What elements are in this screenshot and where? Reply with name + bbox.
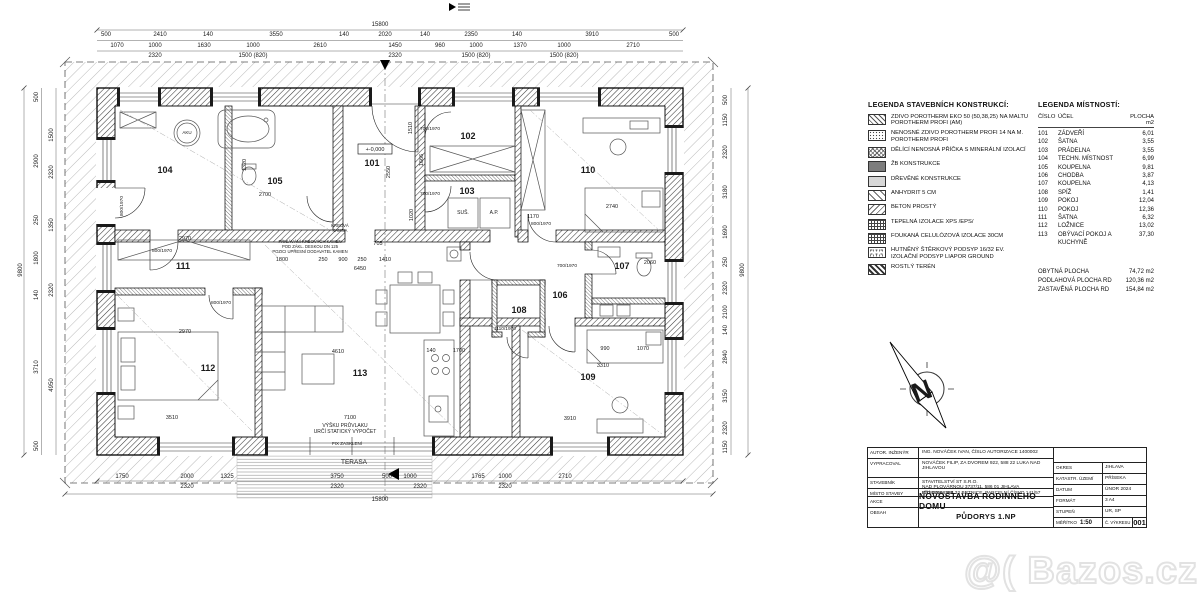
hatch-swatch <box>868 130 886 141</box>
plan-label: 3550 <box>269 32 283 38</box>
plan-label: 800/1970 <box>211 300 231 306</box>
plan-label: 2320 <box>723 145 729 159</box>
plan-label: 500 <box>101 32 112 38</box>
title-block-empty-cell <box>1054 448 1146 463</box>
room-number: 105 <box>1038 164 1058 172</box>
col-ucel: ÚČEL <box>1058 114 1128 126</box>
plan-label: 1320 <box>242 159 248 171</box>
plan-label: 101 <box>364 158 379 168</box>
plan-label: 1350 <box>49 218 55 232</box>
legend-construction-item: DŘEVĚNÉ KONSTRUKCE <box>868 176 1030 187</box>
plan-label: 105 <box>267 176 282 186</box>
area-totals: OBYTNÁ PLOCHA 74,72 m2 PODLAHOVÁ PLOCHA … <box>1038 268 1154 295</box>
room-name: PRÁDELNA <box>1058 147 1128 155</box>
plan-label: 2970 <box>179 329 191 335</box>
legend-construction-item: DĚLÍCÍ NENOSNÁ PŘÍČKA S MINERÁLNÍ IZOLAC… <box>868 147 1030 158</box>
plan-label: 500 <box>34 440 40 451</box>
plan-label: 1150 <box>723 113 729 127</box>
room-name: KOUPELNA <box>1058 180 1128 188</box>
plan-label: 4950 <box>49 378 55 392</box>
plan-label: 1500 (820) <box>238 53 267 59</box>
room-name: ŠATNA <box>1058 138 1128 146</box>
hatch-swatch <box>868 204 886 215</box>
total-label: OBYTNÁ PLOCHA <box>1038 268 1129 277</box>
plan-label: 2320 <box>49 283 55 297</box>
plan-label: 800/1970 <box>119 196 125 216</box>
plan-label: 3750 <box>330 474 344 480</box>
plan-label: 2320 <box>180 484 194 490</box>
plan-label: +-0,000 <box>366 147 385 153</box>
plan-label: FIX ZASKLENÍ <box>332 440 363 446</box>
plan-label: 7100 <box>344 415 356 421</box>
floor-plan: 1580050024101403550140202014023501403910… <box>0 0 760 595</box>
plan-label: 2970 <box>179 236 191 242</box>
plan-label: 705 <box>373 241 382 247</box>
plan-label: 1070 <box>110 43 124 49</box>
plan-label: 1000 <box>403 474 417 480</box>
total-value: 74,72 m2 <box>1129 268 1154 277</box>
plan-label: 3710 <box>34 360 40 374</box>
info-label: OKRES <box>1054 463 1103 473</box>
plan-label: 700/1970 <box>420 191 440 197</box>
legend-construction-item: ŽB KONSTRUKCE <box>868 161 1030 172</box>
plan-label: 2350 <box>464 32 478 38</box>
project-title: NOVOSTAVBA RODINNÉHO DOMU <box>919 497 1053 507</box>
legend-construction-label: HUTNĚNÝ ŠTĚRKOVÝ PODSYP 16/32 EV. IZOLAČ… <box>891 247 1030 260</box>
plan-label: 108 <box>511 305 526 315</box>
plan-label: 1020 <box>409 209 415 221</box>
room-number: 112 <box>1038 222 1058 230</box>
room-number: 103 <box>1038 147 1058 155</box>
plan-label: 1800 <box>34 251 40 265</box>
plan-label: 2060 <box>644 260 656 266</box>
plan-label: 1630 <box>197 43 211 49</box>
room-area: 1,41 <box>1128 189 1154 197</box>
plan-label: 112 <box>201 363 216 373</box>
plan-label: URČÍ STATICKÝ VÝPOČET <box>314 428 377 435</box>
plan-label: 15800 <box>372 497 389 503</box>
title-block-row-label: VYPRACOVAL <box>868 459 919 477</box>
room-area: 13,02 <box>1128 222 1154 230</box>
room-number: 101 <box>1038 130 1058 138</box>
roof-overhang <box>60 57 718 488</box>
room-name: ŠATNA <box>1058 214 1128 222</box>
plan-label: 2710 <box>626 43 640 49</box>
legend-construction-item: HUTNĚNÝ ŠTĚRKOVÝ PODSYP 16/32 EV. IZOLAČ… <box>868 247 1030 260</box>
plan-label: 1000 <box>148 43 162 49</box>
room-name: KOUPELNA <box>1058 164 1128 172</box>
plan-label: 1410 <box>379 257 391 263</box>
plan-label: 4610 <box>332 349 344 355</box>
legend-rooms-header: ČÍSLO ÚČEL PLOCHA m2 <box>1038 114 1154 128</box>
plan-label: 990 <box>600 346 609 352</box>
room-number: 111 <box>1038 214 1058 222</box>
info-value: 3 A4 <box>1103 496 1146 506</box>
plan-label: 3510 <box>166 415 178 421</box>
hatch-swatch <box>868 147 886 158</box>
total-row: OBYTNÁ PLOCHA 74,72 m2 <box>1038 268 1154 277</box>
plan-label: 250 <box>34 214 40 225</box>
room-area: 12,36 <box>1128 206 1154 214</box>
title-block-row: AUTOR. INŽENÝR ING. NOVÁČEK IVAN, ČÍSLO … <box>868 448 1053 459</box>
plan-label: 2020 <box>378 32 392 38</box>
plan-label: 250 <box>723 256 729 267</box>
plan-label: 1325 <box>220 474 234 480</box>
total-row: ZASTAVĚNÁ PLOCHA RD 154,84 m2 <box>1038 286 1154 295</box>
plan-label: 1450 <box>388 43 402 49</box>
plan-label: 800/1970 <box>531 221 551 227</box>
legend-construction-item: ANHYDRIT 5 cm <box>868 190 1030 201</box>
legend-construction-label: BETON PROSTÝ <box>891 204 936 210</box>
plan-label: 1000 <box>469 43 483 49</box>
legend-rooms-title: LEGENDA MÍSTNOSTÍ: <box>1038 100 1154 109</box>
room-number: 108 <box>1038 189 1058 197</box>
total-label: ZASTAVĚNÁ PLOCHA RD <box>1038 286 1126 295</box>
col-cislo: ČÍSLO <box>1038 114 1058 126</box>
total-label: PODLAHOVÁ PLOCHA RD <box>1038 277 1126 286</box>
info-row: DATUM ÚNOR 2024 <box>1054 485 1146 496</box>
legend-constructions-list: ZDIVO POROTHERM EKO 50 (50,38,25) NA MAL… <box>868 114 1030 275</box>
furniture <box>118 110 663 436</box>
plan-label: 3910 <box>564 416 576 422</box>
info-row: STUPEŇ UR, SP <box>1054 507 1146 518</box>
room-row: 105 KOUPELNA 9,81 <box>1038 164 1154 172</box>
akce-row: AKCE NOVOSTAVBA RODINNÉHO DOMU <box>868 497 1053 508</box>
room-row: 101 ZÁDVEŘÍ 6,01 <box>1038 130 1154 138</box>
plan-label: A.P. <box>490 210 499 216</box>
hatch-swatch <box>868 161 886 172</box>
plan-label: 109 <box>580 372 595 382</box>
room-area: 6,01 <box>1128 130 1154 138</box>
plan-label: 250 <box>318 257 327 263</box>
page: 1580050024101403550140202014023501403910… <box>0 0 1200 595</box>
plan-label: 104 <box>157 165 172 175</box>
room-area: 12,04 <box>1128 197 1154 205</box>
room-name: LOŽNICE <box>1058 222 1128 230</box>
legend-construction-item: BETON PROSTÝ <box>868 204 1030 215</box>
plan-label: 2320 <box>413 484 427 490</box>
legend-construction-item: FOUKANÁ CELULÓZOVÁ IZOLACE 30cm <box>868 233 1030 244</box>
plan-label: 500 <box>382 474 393 480</box>
room-row: 104 TECHN. MÍSTNOST 6,99 <box>1038 155 1154 163</box>
plan-label: 2610 <box>313 43 327 49</box>
plan-label: AKU <box>182 130 191 135</box>
info-label: KATASTR. ÚZEMÍ <box>1054 474 1103 484</box>
plan-label: 2710 <box>558 474 572 480</box>
plan-label: 2320 <box>330 484 344 490</box>
plan-label: 140 <box>426 348 435 354</box>
legend-rooms-list: 101 ZÁDVEŘÍ 6,01 102 ŠATNA 3,55 103 PRÁD… <box>1038 130 1154 248</box>
plan-label: 1500 (820) <box>549 53 578 59</box>
plan-label: 2900 <box>34 154 40 168</box>
room-name: CHODBA <box>1058 172 1128 180</box>
plan-label: 140 <box>723 324 729 335</box>
hatch-swatch <box>868 114 886 125</box>
title-block-row-label: MÍSTO STAVBY <box>868 489 919 496</box>
plan-label: 1690 <box>723 225 729 239</box>
plan-label: 113 <box>353 368 368 378</box>
info-value: JIHLAVA <box>1103 463 1146 473</box>
plan-label: 15800 <box>372 22 389 28</box>
plan-label: 2700 <box>259 192 271 198</box>
plan-label: 1700 <box>453 348 465 354</box>
plan-label: 140 <box>339 32 350 38</box>
room-number: 106 <box>1038 172 1058 180</box>
room-area: 3,55 <box>1128 138 1154 146</box>
legend-construction-label: DĚLÍCÍ NENOSNÁ PŘÍČKA S MINERÁLNÍ IZOLAC… <box>891 147 1026 153</box>
room-number: 113 <box>1038 231 1058 248</box>
legend-construction-label: ANHYDRIT 5 cm <box>891 190 936 196</box>
info-label: DATUM <box>1054 485 1103 495</box>
plan-label: 1765 <box>471 474 485 480</box>
legend-rooms: LEGENDA MÍSTNOSTÍ: ČÍSLO ÚČEL PLOCHA m2 … <box>1038 100 1154 295</box>
akce-label: AKCE <box>868 497 919 507</box>
info-row: KATASTR. ÚZEMÍ PŘÍSEKA <box>1054 474 1146 485</box>
room-name: OBÝVACÍ POKOJ A KUCHYNĚ <box>1058 231 1128 248</box>
room-diagonals <box>118 110 662 434</box>
plan-label: 107 <box>614 261 629 271</box>
interior-walls <box>115 106 665 437</box>
room-name: SPÍŽ <box>1058 189 1128 197</box>
plan-label: 3910 <box>585 32 599 38</box>
plan-label: POZICI UPŘESNÍ DODAVATEL KAMEN <box>272 249 347 254</box>
title-block-row: STAVEBNÍK STAVITELSTVÍ ST S.R.O. NAD PLO… <box>868 478 1053 489</box>
watermark-logo: @( <box>964 550 1016 592</box>
info-value: UR, SP <box>1103 507 1146 517</box>
room-area: 3,87 <box>1128 172 1154 180</box>
plan-label: 1000 <box>498 474 512 480</box>
plan-label: 1500 <box>49 128 55 142</box>
plan-label: 700/1970 <box>557 263 577 269</box>
plan-label: 2320 <box>49 165 55 179</box>
watermark: @( Bazos.cz <box>964 550 1198 593</box>
room-row: 103 PRÁDELNA 3,55 <box>1038 147 1154 155</box>
obsah-label: OBSAH <box>868 508 919 527</box>
title-block-row: VYPRACOVAL NOVÁČEK FILIP, ZA DVOREM 922,… <box>868 459 1053 478</box>
title-block-row-value: STAVITELSTVÍ ST S.R.O. NAD PLOVÁRNOU 373… <box>919 478 1053 488</box>
legend-construction-label: ROSTLÝ TERÉN <box>891 264 935 270</box>
legend-construction-label: FOUKANÁ CELULÓZOVÁ IZOLACE 30cm <box>891 233 1003 239</box>
title-block-row-value: ING. NOVÁČEK IVAN, ČÍSLO AUTORIZACE 1400… <box>919 448 1053 458</box>
room-row: 110 POKOJ 12,36 <box>1038 206 1154 214</box>
scale-label: MĚŘÍTKO <box>1056 520 1077 528</box>
plan-label: KAMNA <box>333 228 348 233</box>
plan-label: VÝŠKU PRŮVLAKU <box>322 422 368 429</box>
total-row: PODLAHOVÁ PLOCHA RD 120,36 m2 <box>1038 277 1154 286</box>
plan-label: 9800 <box>740 263 746 277</box>
room-number: 102 <box>1038 138 1058 146</box>
info-value: ÚNOR 2024 <box>1103 485 1146 495</box>
hatch-swatch <box>868 219 886 230</box>
room-row: 113 OBÝVACÍ POKOJ A KUCHYNĚ 37,30 <box>1038 231 1154 248</box>
plan-label: 140 <box>512 32 523 38</box>
info-label: FORMÁT <box>1054 496 1103 506</box>
total-value: 120,36 m2 <box>1126 277 1154 286</box>
plan-label: 500 <box>669 32 680 38</box>
room-area: 37,30 <box>1128 231 1154 248</box>
plan-label: 2320 <box>148 53 162 59</box>
legend-constructions: LEGENDA STAVEBNÍCH KONSTRUKCÍ: ZDIVO POR… <box>868 100 1030 278</box>
plan-label: 700/1970 <box>420 126 440 132</box>
plan-label: 800/1970 <box>152 248 172 254</box>
plan-label: 2840 <box>723 350 729 364</box>
hatch-swatch <box>868 233 886 244</box>
hatch-swatch <box>868 176 886 187</box>
plan-label: 1510 <box>408 122 414 134</box>
plan-label: 900 <box>338 257 347 263</box>
plan-label: 3310 <box>597 363 609 369</box>
info-row: OKRES JIHLAVA <box>1054 463 1146 474</box>
room-row: 109 POKOJ 12,04 <box>1038 197 1154 205</box>
plan-label: 960 <box>435 43 446 49</box>
plan-label: 500 <box>34 91 40 102</box>
hatch-swatch <box>868 264 886 275</box>
room-area: 6,99 <box>1128 155 1154 163</box>
plan-label: 3150 <box>723 389 729 403</box>
plan-label: 102 <box>460 131 475 141</box>
plan-label: SUŠ. <box>457 209 469 216</box>
drawing-number: 001 <box>1133 518 1146 527</box>
room-name: POKOJ <box>1058 197 1128 205</box>
drawing-title: PŮDORYS 1.NP <box>919 508 1053 527</box>
scale-cell: MĚŘÍTKO 1:50 <box>1054 518 1103 527</box>
legend-construction-label: ZDIVO POROTHERM EKO 50 (50,38,25) NA MAL… <box>891 114 1030 127</box>
room-row: 106 CHODBA 3,87 <box>1038 172 1154 180</box>
room-name: TECHN. MÍSTNOST <box>1058 155 1128 163</box>
plan-label: 2320 <box>723 421 729 435</box>
room-number: 104 <box>1038 155 1058 163</box>
col-plocha: PLOCHA m2 <box>1128 114 1154 126</box>
plan-label: 1500 (820) <box>461 53 490 59</box>
legend-construction-item: ZDIVO POROTHERM EKO 50 (50,38,25) NA MAL… <box>868 114 1030 127</box>
plan-label: 1110/1970 <box>494 326 516 332</box>
room-area: 6,32 <box>1128 214 1154 222</box>
title-block-row-label: STAVEBNÍK <box>868 478 919 488</box>
plan-label: 2320 <box>723 281 729 295</box>
plan-label: 1750 <box>115 474 129 480</box>
info-value: PŘÍSEKA <box>1103 474 1146 484</box>
legend-construction-item: TEPELNÁ IZOLACE XPS /EPS/ <box>868 219 1030 230</box>
room-row: 102 ŠATNA 3,55 <box>1038 138 1154 146</box>
plan-label: 103 <box>459 186 474 196</box>
room-number: 109 <box>1038 197 1058 205</box>
title-block-row-label: AUTOR. INŽENÝR <box>868 448 919 458</box>
obsah-row: OBSAH PŮDORYS 1.NP <box>868 508 1053 527</box>
room-area: 4,13 <box>1128 180 1154 188</box>
plan-label: 1666 <box>419 154 425 166</box>
title-block: AUTOR. INŽENÝR ING. NOVÁČEK IVAN, ČÍSLO … <box>867 447 1147 528</box>
room-area: 9,81 <box>1128 164 1154 172</box>
plan-label: 1000 <box>246 43 260 49</box>
plan-label: 250 <box>357 257 366 263</box>
room-row: 112 LOŽNICE 13,02 <box>1038 222 1154 230</box>
room-name: POKOJ <box>1058 206 1128 214</box>
legend-construction-label: NENOSNÉ ZDIVO POROTHERM PROFI 14 NA M. P… <box>891 130 1030 143</box>
legend-constructions-title: LEGENDA STAVEBNÍCH KONSTRUKCÍ: <box>868 100 1030 109</box>
plan-label: TERASA <box>341 459 368 466</box>
watermark-text: Bazos.cz <box>1027 550 1198 592</box>
title-block-row-value: NOVÁČEK FILIP, ZA DVOREM 922, 588 22 LUK… <box>919 459 1053 477</box>
plan-label: 1370 <box>513 43 527 49</box>
plan-label: 1000 <box>557 43 571 49</box>
room-area: 3,55 <box>1128 147 1154 155</box>
room-row: 108 SPÍŽ 1,41 <box>1038 189 1154 197</box>
plan-label: 6450 <box>354 266 366 272</box>
room-row: 111 ŠATNA 6,32 <box>1038 214 1154 222</box>
legend-construction-label: DŘEVĚNÉ KONSTRUKCE <box>891 176 961 182</box>
plan-label: 110 <box>581 165 596 175</box>
scale-value: 1:50 <box>1080 520 1092 528</box>
north-arrow: N <box>872 332 992 442</box>
plan-label: 2410 <box>153 32 167 38</box>
hatch-swatch <box>868 190 886 201</box>
plan-label: 1070 <box>637 346 649 352</box>
plan-label: 9800 <box>18 263 24 277</box>
plan-label: 140 <box>420 32 431 38</box>
room-number: 107 <box>1038 180 1058 188</box>
title-block-right: OKRES JIHLAVA KATASTR. ÚZEMÍ PŘÍSEKA DAT… <box>1054 448 1146 527</box>
plan-label: 106 <box>552 290 567 300</box>
info-label: STUPEŇ <box>1054 507 1103 517</box>
legend-construction-item: ROSTLÝ TERÉN <box>868 264 1030 275</box>
plan-label: 1150 <box>723 440 729 454</box>
plan-label: 2320 <box>388 53 402 59</box>
drawing-number-label: Č. VÝKRESU <box>1103 518 1133 527</box>
plan-label: 3180 <box>723 185 729 199</box>
plan-label: 2100 <box>723 305 729 319</box>
plan-label: 2320 <box>498 484 512 490</box>
scale-row: MĚŘÍTKO 1:50 Č. VÝKRESU 001 <box>1054 518 1146 527</box>
plan-label: 111 <box>176 261 190 271</box>
room-number: 110 <box>1038 206 1058 214</box>
plan-label: 1170 <box>527 214 539 220</box>
plan-label: 140 <box>34 289 40 300</box>
plan-label: 500 <box>723 94 729 105</box>
plan-label: 1800 <box>276 257 288 263</box>
hatch-swatch <box>868 247 886 258</box>
north-letter: N <box>907 374 936 409</box>
room-row: 107 KOUPELNA 4,13 <box>1038 180 1154 188</box>
legend-construction-label: ŽB KONSTRUKCE <box>891 161 940 167</box>
legend-construction-label: TEPELNÁ IZOLACE XPS /EPS/ <box>891 219 973 225</box>
plan-label: 2550 <box>386 166 392 178</box>
plan-label: 140 <box>203 32 214 38</box>
plan-label: 2740 <box>606 204 618 210</box>
info-row: FORMÁT 3 A4 <box>1054 496 1146 507</box>
title-block-left: AUTOR. INŽENÝR ING. NOVÁČEK IVAN, ČÍSLO … <box>868 448 1054 527</box>
legend-construction-item: NENOSNÉ ZDIVO POROTHERM PROFI 14 NA M. P… <box>868 130 1030 143</box>
plan-label: 2000 <box>180 474 194 480</box>
room-name: ZÁDVEŘÍ <box>1058 130 1128 138</box>
total-value: 154,84 m2 <box>1126 286 1154 295</box>
